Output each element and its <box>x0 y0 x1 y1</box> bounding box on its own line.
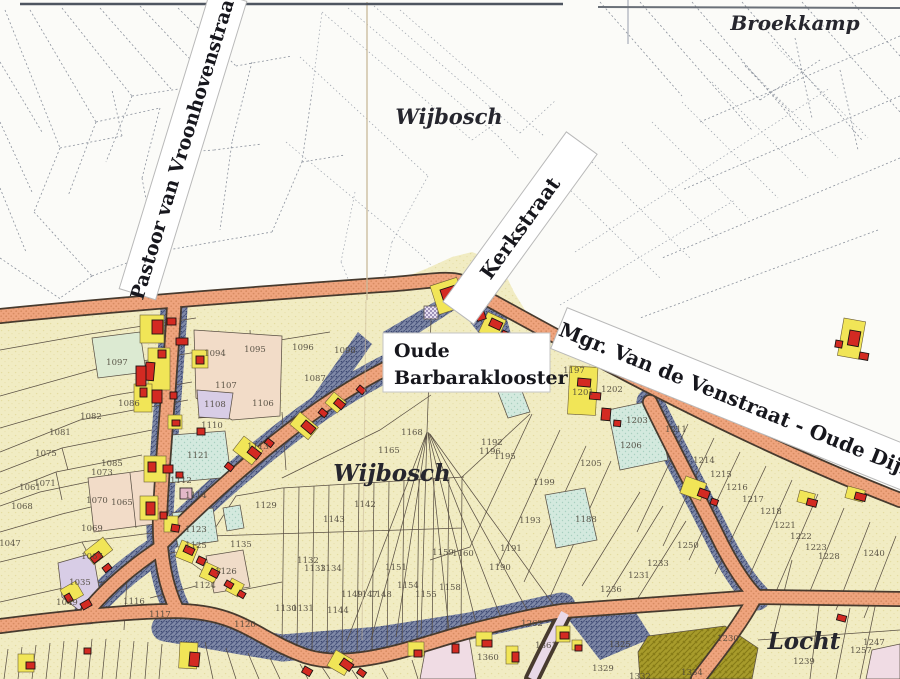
parcel-number: 1107 <box>215 381 237 391</box>
parcel-number: 1120 <box>234 620 256 630</box>
parcel-number: 1070 <box>86 496 108 506</box>
parcel-number: 1110 <box>201 421 223 431</box>
parcel-number: 1065 <box>111 498 133 508</box>
parcel-number: 1108 <box>204 400 226 410</box>
parcel-number: 1047 <box>0 539 21 549</box>
parcel-number: 1125 <box>185 541 207 551</box>
parcel-number: 1097 <box>106 358 128 368</box>
parcel-number: 1155 <box>415 590 437 600</box>
parcel-number: 1217 <box>742 495 764 505</box>
parcel-number: 1073 <box>91 468 113 478</box>
parcel-number: 1087 <box>304 374 326 384</box>
parcel-number: 1158 <box>439 583 461 593</box>
parcel-number: 1231 <box>628 571 650 581</box>
parcel-number: 1230 <box>717 634 739 644</box>
building-label-box: Oude Barbaraklooster <box>383 333 569 392</box>
parcel-number: 1121 <box>187 451 209 461</box>
parcel-number: 1135 <box>230 540 252 550</box>
parcel-number: 1190 <box>489 563 511 573</box>
parcel-number: 1124 <box>194 581 216 591</box>
place-label-wijbosch-village: Wijbosch <box>333 460 451 487</box>
parcel-number: 1082 <box>80 412 102 422</box>
parcel-number: 1129 <box>255 501 277 511</box>
parcel-number: 1094 <box>204 349 226 359</box>
parcel-number: 1112 <box>170 476 192 486</box>
parcel-number: 1095 <box>244 345 266 355</box>
parcel-number: 1159 <box>432 548 454 558</box>
top-border-line-right <box>598 7 900 8</box>
parcel-number: 1250 <box>677 541 699 551</box>
parcel-number: 1116 <box>123 597 145 607</box>
place-label-broekkamp: Broekkamp <box>729 11 859 35</box>
parcel-number: 1067 <box>81 552 103 562</box>
parcel-number: 1151 <box>385 563 407 573</box>
parcel-number: 1228 <box>818 552 840 562</box>
parcel-number: 1233 <box>647 559 669 569</box>
parcel-number: 1262 <box>521 619 543 629</box>
parcel-number: 1222 <box>790 532 812 542</box>
cadastral-map-page: 1097109410951096109810871086110711061108… <box>0 0 900 679</box>
parcel-number: 1117 <box>149 610 171 620</box>
parcel-number: 1240 <box>863 549 885 559</box>
parcel-number: 1165 <box>378 446 400 456</box>
parcel-number: 1334 <box>681 668 703 678</box>
parcel-number: 1148 <box>370 590 392 600</box>
parcel-number: 1188 <box>575 515 597 525</box>
parcel-number: 1218 <box>760 507 782 517</box>
parcel-number: 1361 <box>535 641 557 651</box>
parcel-number: 1195 <box>494 452 516 462</box>
parcel-number: 1203 <box>626 416 648 426</box>
parcel-number: 1126 <box>215 567 237 577</box>
parcel-number: 1160 <box>452 549 474 559</box>
parcel-number: 1131 <box>292 604 314 614</box>
building-label-line2: Barbaraklooster <box>394 367 569 389</box>
parcel-number: 1069 <box>81 524 103 534</box>
parcel-number: 1134 <box>320 564 342 574</box>
parcel-number: 1221 <box>774 521 796 531</box>
parcel-number: 1144 <box>327 606 349 616</box>
parcel-number: 1191 <box>500 544 522 554</box>
parcel-number: 1360 <box>477 653 499 663</box>
parcel-number: 1239 <box>793 657 815 667</box>
parcel-number: 1075 <box>35 449 57 459</box>
parcel-number: 1168 <box>401 428 423 438</box>
parcel-number: 1049 <box>56 598 78 608</box>
parcel-number: 1332 <box>629 672 651 679</box>
parcel-number: 1206 <box>620 441 642 451</box>
parcel-number: 1201 <box>572 388 594 398</box>
parcel-number: 1142 <box>354 500 376 510</box>
parcel-number: 1193 <box>519 516 541 526</box>
parcel-number: 1068 <box>11 502 33 512</box>
parcel-number: 1211 <box>665 425 687 435</box>
parcel-number: 1329 <box>592 664 614 674</box>
parcel-number: 1086 <box>118 399 140 409</box>
parcel-number: 1098 <box>334 346 356 356</box>
parcel-number: 1113 <box>247 442 269 452</box>
parcel-number: 1214 <box>693 456 715 466</box>
place-label-locht: Locht <box>767 628 841 655</box>
parcel-number: 1215 <box>710 470 732 480</box>
parcel-number: 1035 <box>69 578 91 588</box>
parcel-number: 1236 <box>600 585 622 595</box>
parcel-number: 1114 <box>185 491 207 501</box>
parcel-number: 1202 <box>601 385 623 395</box>
parcel-number: 1257 <box>850 646 872 656</box>
parcel-number: 1096 <box>292 343 314 353</box>
parcel-number: 1216 <box>726 483 748 493</box>
building-label-line1: Oude <box>394 340 450 362</box>
parcel-number: 1205 <box>580 459 602 469</box>
parcel-number: 1123 <box>185 525 207 535</box>
parcel-number: 1081 <box>49 428 71 438</box>
parcel-number: 1061 <box>19 483 41 493</box>
parcel-number: 1325 <box>609 640 631 650</box>
parcel-number: 1143 <box>323 515 345 525</box>
place-label-wijbosch-north: Wijbosch <box>395 104 502 129</box>
parcel-number: 1106 <box>252 399 274 409</box>
parcel-number: 1199 <box>533 478 555 488</box>
cadastral-map: 1097109410951096109810871086110711061108… <box>0 0 900 679</box>
